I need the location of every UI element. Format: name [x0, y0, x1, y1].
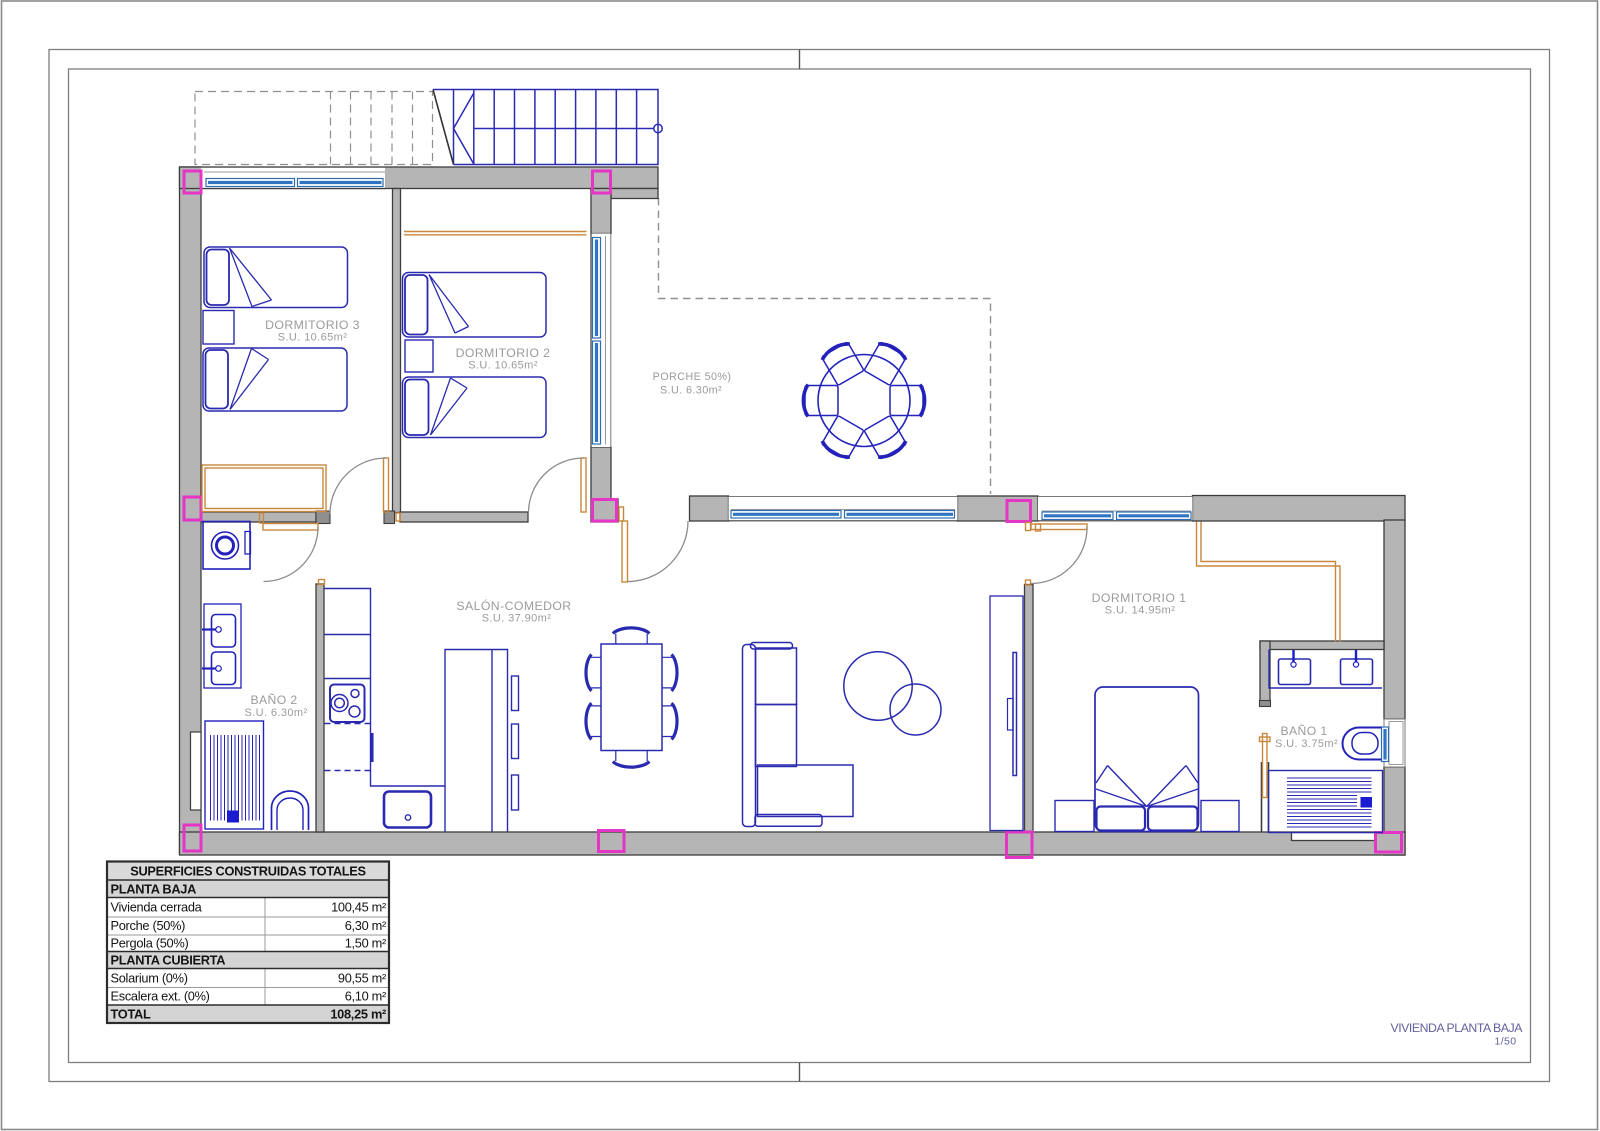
svg-text:SUPERFICIES CONSTRUIDAS TOTALE: SUPERFICIES CONSTRUIDAS TOTALES: [130, 864, 366, 879]
svg-text:S.U. 37.90m²: S.U. 37.90m²: [482, 613, 552, 625]
svg-text:PLANTA BAJA: PLANTA BAJA: [111, 882, 197, 897]
svg-text:S.U. 10.65m²: S.U. 10.65m²: [468, 360, 538, 372]
svg-text:S.U. 3.75m²: S.U. 3.75m²: [1275, 738, 1338, 750]
svg-text:S.U. 10.65m²: S.U. 10.65m²: [278, 332, 348, 344]
svg-text:VIVIENDA PLANTA BAJA: VIVIENDA PLANTA BAJA: [1390, 1021, 1523, 1035]
svg-text:BAÑO 1: BAÑO 1: [1280, 724, 1327, 738]
svg-text:DORMITORIO 2: DORMITORIO 2: [456, 346, 551, 360]
svg-text:DORMITORIO 1: DORMITORIO 1: [1092, 591, 1187, 605]
svg-text:S.U. 6.30m²: S.U. 6.30m²: [244, 707, 307, 719]
svg-text:6,10 m²: 6,10 m²: [345, 989, 387, 1004]
svg-text:1,50 m²: 1,50 m²: [345, 936, 387, 951]
svg-text:BAÑO 2: BAÑO 2: [250, 693, 297, 707]
svg-text:S.U. 6.30m²: S.U. 6.30m²: [660, 385, 722, 397]
svg-text:90,55 m²: 90,55 m²: [338, 971, 387, 986]
svg-text:Vivienda cerrada: Vivienda cerrada: [111, 900, 203, 915]
svg-text:Escalera ext. (0%): Escalera ext. (0%): [111, 989, 210, 1004]
svg-text:6,30 m²: 6,30 m²: [345, 918, 387, 933]
svg-text:Solarium (0%): Solarium (0%): [111, 971, 188, 986]
svg-text:DORMITORIO 3: DORMITORIO 3: [265, 318, 360, 332]
svg-text:PORCHE 50%): PORCHE 50%): [653, 371, 732, 383]
svg-text:Porche (50%): Porche (50%): [111, 918, 186, 933]
svg-text:SALÓN-COMEDOR: SALÓN-COMEDOR: [456, 598, 571, 613]
svg-text:100,45 m²: 100,45 m²: [331, 900, 387, 915]
svg-text:S.U. 14.95m²: S.U. 14.95m²: [1105, 605, 1176, 617]
svg-text:Pergola (50%): Pergola (50%): [111, 936, 189, 951]
svg-text:1/50: 1/50: [1494, 1036, 1516, 1048]
svg-text:PLANTA CUBIERTA: PLANTA CUBIERTA: [111, 953, 226, 968]
svg-text:TOTAL: TOTAL: [111, 1007, 151, 1022]
svg-text:108,25 m²: 108,25 m²: [330, 1007, 386, 1022]
